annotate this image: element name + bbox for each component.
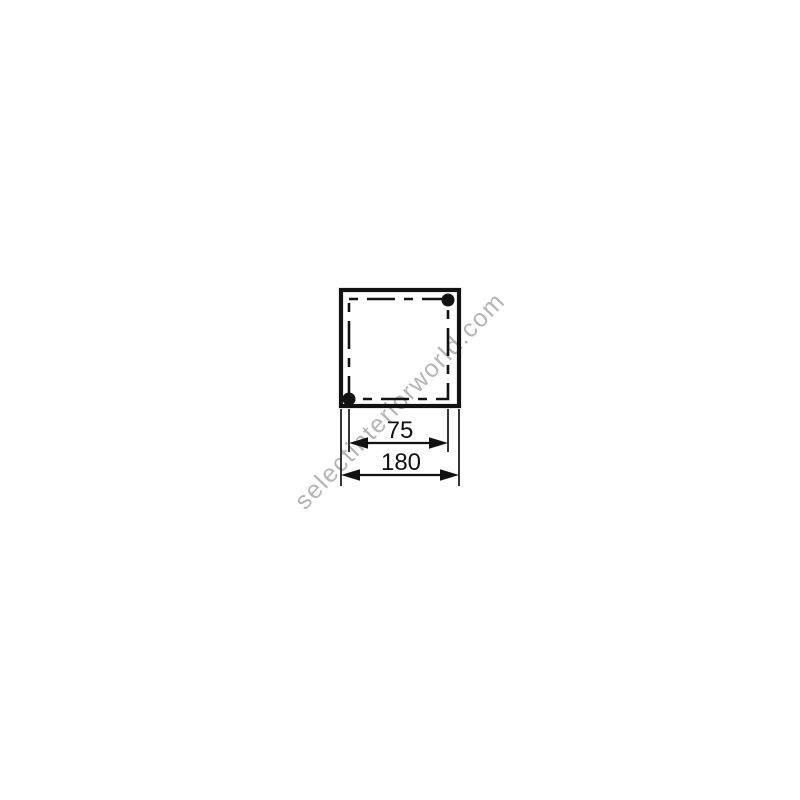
dimension-label-hole-spacing: 75	[387, 417, 414, 444]
arrowhead-right-overall-width	[440, 469, 459, 481]
drawing-canvas: selectinteriorworld.com 75 180	[0, 0, 800, 800]
dimension-label-overall-width: 180	[381, 449, 421, 476]
technical-drawing: selectinteriorworld.com 75 180	[0, 0, 800, 800]
mounting-hole-top-right	[442, 294, 455, 307]
watermark-text: selectinteriorworld.com	[289, 287, 511, 515]
mounting-hole-bottom-left	[343, 393, 356, 406]
arrowhead-right-hole-spacing	[429, 437, 448, 449]
